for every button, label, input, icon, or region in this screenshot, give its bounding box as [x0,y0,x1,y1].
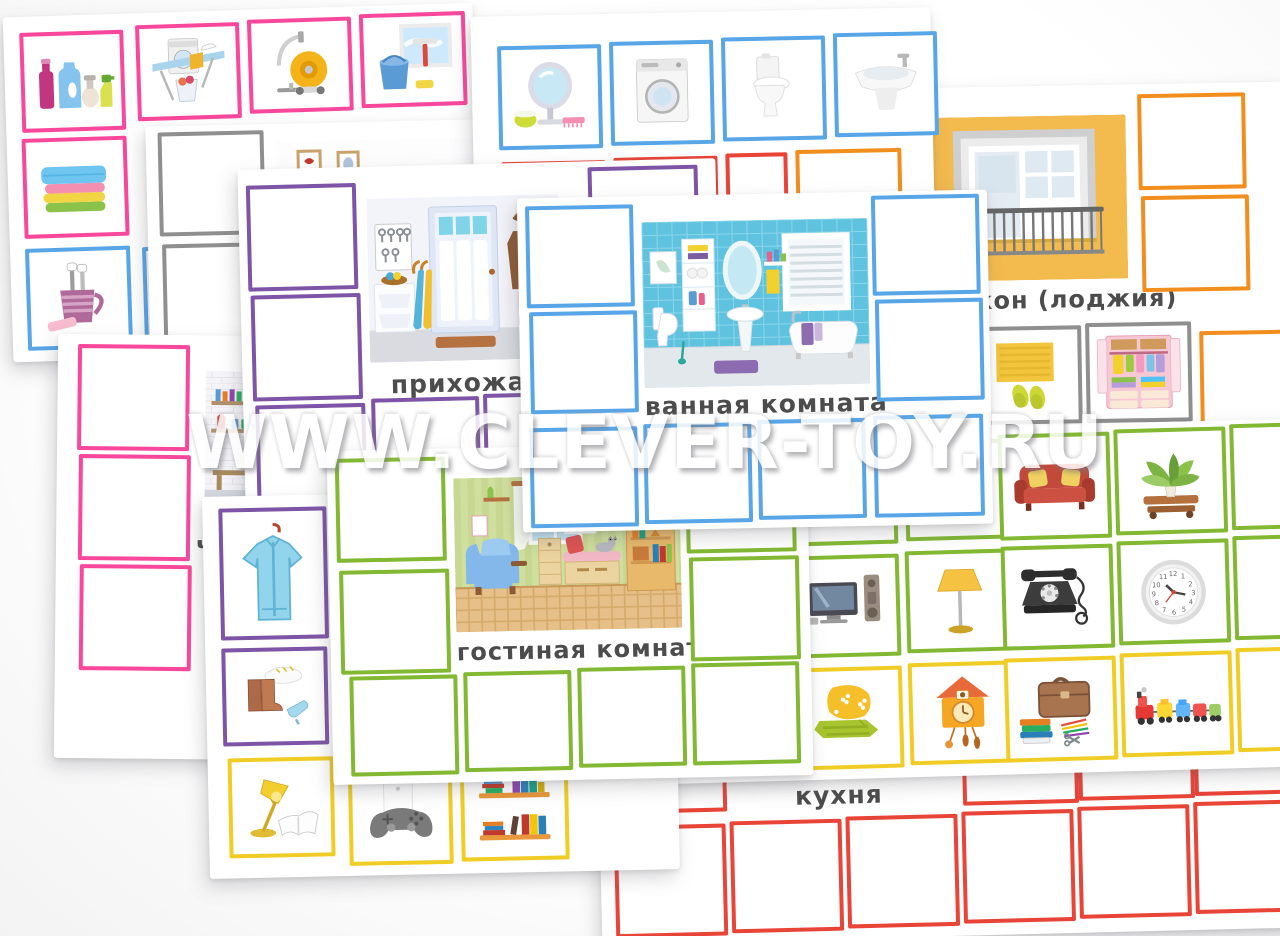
houseplant-icon [1124,438,1218,525]
tile-toy-train [1120,650,1235,757]
tile-empty-green [335,457,447,563]
tile-rug-and-slippers [977,325,1083,425]
tile-empty-orange [1137,92,1247,190]
svg-text:4: 4 [1189,598,1194,606]
svg-text:2: 2 [1188,580,1193,588]
tile-empty-green [463,670,573,772]
tile-empty-purple [246,183,359,292]
tile-cuckoo-clock [908,660,1019,765]
tile-houseplant [1113,426,1228,535]
tile-empty-red [729,819,844,934]
tile-empty-green [1232,534,1280,640]
tile-boots-and-shoes [221,646,329,746]
tile-empty-red [845,814,960,929]
tile-wall-clock: 121 23 45 67 89 1011 [1116,538,1231,645]
wall-clock-icon: 121 23 45 67 89 1011 [1127,549,1221,634]
window-washing-icon [369,21,458,98]
tile-cleaning-bottles [19,30,126,133]
svg-text:3: 3 [1191,589,1196,597]
tile-table-mirror [497,44,603,150]
tv-set-icon [803,564,891,647]
cleaning-bottles-icon [29,40,116,122]
svg-text:11: 11 [1159,573,1168,581]
svg-text:5: 5 [1182,605,1187,613]
game-controller-icon [358,776,444,855]
tile-empty-red [961,809,1076,924]
cushion-and-blanket-icon [806,676,894,759]
tile-empty-red [1193,799,1280,914]
svg-text:6: 6 [1172,608,1177,616]
telephone-icon [1011,555,1105,640]
bathroom-card-title: ванная комната [645,388,872,421]
tile-empty-purple [251,293,364,402]
photo-stage: балкон (лоджия) [0,0,1280,936]
tile-empty-blue [529,310,639,414]
briefcase-and-books-icon [1014,667,1108,752]
tile-empty-blue [529,426,639,528]
tile-bidet [833,31,939,137]
tile-empty-blue [643,422,753,524]
svg-text:8: 8 [1155,599,1160,607]
toothbrush-cup-icon [35,256,123,339]
svg-text:7: 7 [1162,606,1167,614]
tile-sofa [997,432,1112,541]
tile-empty-blue [871,194,981,296]
tile-floor-lamp [905,548,1016,653]
tile-desk-lamp [228,756,336,858]
svg-text:1: 1 [1181,572,1186,580]
rug-and-slippers-icon [987,336,1073,415]
tile-vacuum-cleaner [247,17,354,114]
tile-empty-green [689,555,801,661]
tile-empty-orange [1141,194,1251,292]
tile-empty-pink [77,344,190,451]
tile-empty-pink [78,454,191,561]
tile-jacket [218,506,329,640]
bathroom-scene-icon [641,218,870,388]
wardrobe-icon [1095,332,1183,413]
vacuum-cleaner-icon [257,27,344,104]
sofa-icon [1008,443,1102,530]
bidet-icon [843,42,929,126]
bathroom-scene [641,218,870,388]
tile-empty-pink [79,564,192,671]
kitchen-card-title: кухня [729,778,950,812]
tile-towels-stack [22,136,130,239]
tile-washing-machine [609,40,715,146]
living-room-card-title: гостиная комната [457,634,684,667]
tile-briefcase-and-books [1004,656,1119,763]
tile-window-washing [359,11,468,108]
tile-empty-green [577,666,687,768]
tile-telephone [1000,544,1115,651]
svg-text:12: 12 [1169,570,1178,578]
tile-empty-green [349,674,459,776]
boots-and-shoes-icon [231,657,319,736]
tile-toilet [721,35,827,141]
floor-lamp-icon [915,559,1005,642]
towels-stack-icon [32,146,120,228]
tile-empty-blue [873,414,985,518]
tile-empty-blue [875,298,985,402]
ironing-set-icon [145,33,232,111]
table-mirror-icon [507,55,593,139]
bathroom-room-card: ванная комната [517,190,993,533]
svg-text:10: 10 [1152,581,1161,589]
tile-empty-blue [525,204,635,308]
tile-empty-green [1229,422,1280,530]
tile-empty-blue [757,418,867,520]
cuckoo-clock-icon [918,671,1008,754]
tile-empty-orange [1199,329,1280,429]
washing-machine-icon [619,51,705,135]
toilet-icon [731,46,817,130]
tile-ironing-set [135,22,242,121]
tile-wardrobe [1085,321,1193,423]
tile-empty-green [691,661,801,765]
jacket-icon [229,519,319,627]
tile-empty-yellow [1235,646,1280,752]
tile-empty-green [339,569,451,675]
svg-text:9: 9 [1152,590,1157,598]
bookshelf-icon [470,772,560,851]
toy-train-icon [1130,661,1224,746]
tile-empty-red [1077,804,1192,919]
desk-lamp-icon [238,767,326,848]
